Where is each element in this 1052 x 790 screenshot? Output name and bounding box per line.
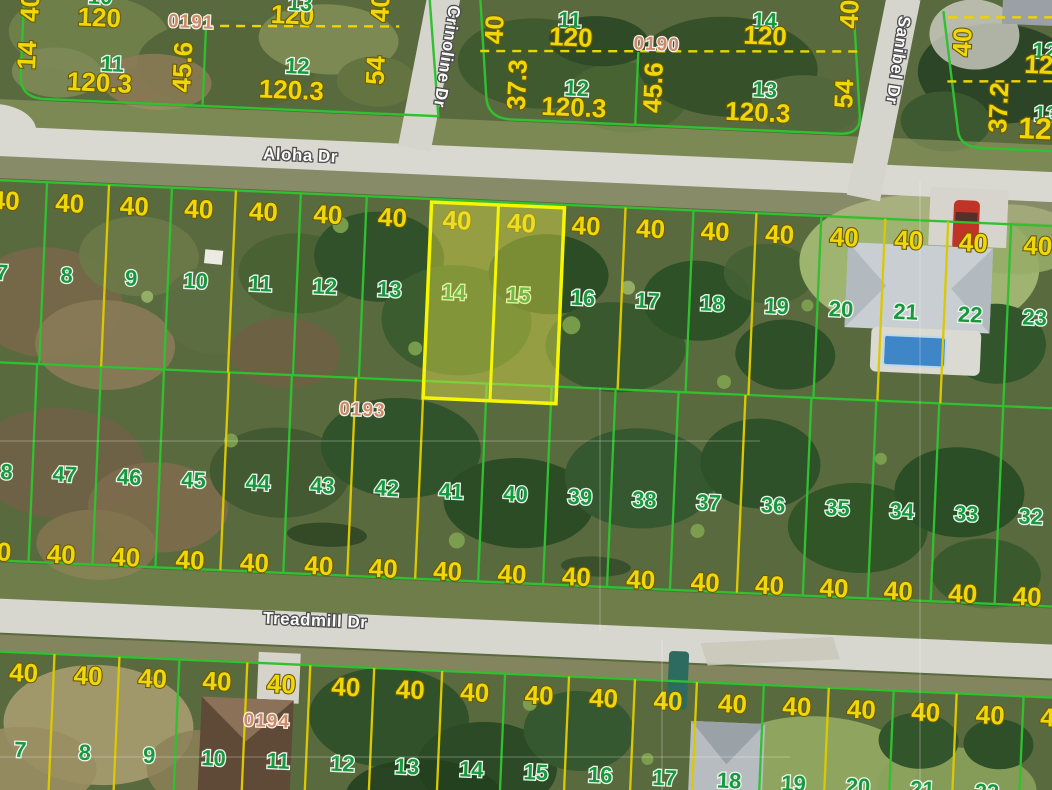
lot-width-label: 40 <box>460 677 490 708</box>
corner-building-roof <box>1002 0 1052 26</box>
lot-width-label: 40 <box>248 196 278 227</box>
dim-label: 40 <box>14 0 45 22</box>
lot-number-label[interactable]: 11 <box>248 271 272 297</box>
lot-number-label[interactable]: 11 <box>266 748 290 774</box>
lot-number-label[interactable]: 39 <box>567 484 593 510</box>
lot-width-label: 40 <box>1012 581 1042 612</box>
lot-number-label[interactable]: 44 <box>245 470 271 496</box>
dim-label: 40 <box>946 27 977 57</box>
swimming-pool <box>883 335 946 368</box>
lot-number-label[interactable]: 13 <box>377 276 403 302</box>
lot-number-label[interactable]: 33 <box>953 501 979 527</box>
lot-number-label[interactable]: 22 <box>974 779 1000 790</box>
lot-number-label[interactable]: 16 <box>587 762 613 788</box>
lot-number-label[interactable]: 8 <box>60 262 73 288</box>
lot-number-label[interactable]: 40 <box>503 481 529 507</box>
lot-number-label[interactable]: 17 <box>652 765 678 790</box>
dim-label: 120 <box>1018 112 1052 147</box>
lot-width-label: 40 <box>690 567 720 598</box>
dim-label: 40 <box>364 0 395 23</box>
dim-label: 54 <box>360 55 391 86</box>
lot-number-label[interactable]: 19 <box>764 293 790 319</box>
lot-width-label: 40 <box>175 544 205 575</box>
map-rotated-layer: 7891011121314151617181920212223404040404… <box>0 0 1052 790</box>
lot-width-label: 40 <box>883 575 913 606</box>
lot-number-label[interactable]: 21 <box>910 776 936 790</box>
lot-width-label: 40 <box>975 699 1005 730</box>
parcel-map[interactable]: 7891011121314151617181920212223404040404… <box>0 0 1052 790</box>
lot-width-label: 40 <box>561 561 591 592</box>
lot-width-label: 40 <box>202 665 232 696</box>
dim-label: 45.6 <box>166 41 198 93</box>
dim-label: 14 <box>11 40 42 71</box>
selected-parcel-highlight[interactable] <box>423 202 564 404</box>
lot-width-label: 40 <box>119 190 149 221</box>
lot-number-label[interactable]: 19 <box>781 770 807 790</box>
block-label-0190: 0190 <box>633 33 680 56</box>
dim-label: 120.3 <box>725 96 791 129</box>
lot-number-label[interactable]: 7 <box>14 737 27 763</box>
lot-number-label[interactable]: 18 <box>716 768 742 790</box>
lot-number-label[interactable]: 46 <box>116 464 142 490</box>
lot-width-label: 40 <box>626 564 656 595</box>
lot-number-label[interactable]: 20 <box>845 773 871 790</box>
lot-number-label[interactable]: 10 <box>183 268 209 294</box>
lot-number-label[interactable]: 37 <box>696 489 722 515</box>
lot-width-label: 40 <box>846 694 876 725</box>
lot-number-label[interactable]: 41 <box>438 478 464 504</box>
lot-width-label: 40 <box>46 539 76 570</box>
lot-number-label[interactable]: 34 <box>889 498 915 524</box>
dim-label: 120 <box>1024 49 1052 81</box>
lot-width-label: 40 <box>137 663 167 694</box>
dim-label: 45.6 <box>637 62 669 114</box>
lot-width-label: 40 <box>377 202 407 233</box>
lot-width-label: 40 <box>395 674 425 705</box>
lot-width-label: 40 <box>1023 230 1052 261</box>
dim-label: 54 <box>828 78 859 109</box>
lot-number-label[interactable]: 21 <box>893 299 919 325</box>
lot-number-label[interactable]: 43 <box>310 473 336 499</box>
lot-width-label: 40 <box>755 570 785 601</box>
lot-width-label: 40 <box>571 210 601 241</box>
lot-width-label: 40 <box>304 550 334 581</box>
lot-number-label[interactable]: 22 <box>957 302 983 328</box>
lot-width-label: 40 <box>184 193 214 224</box>
lot-width-label: 40 <box>653 685 683 716</box>
lot-number-label[interactable]: 36 <box>760 492 786 518</box>
lot-number-label[interactable]: 18 <box>699 290 725 316</box>
lot-number-label[interactable]: 9 <box>143 742 156 768</box>
lot-width-label: 40 <box>0 536 12 567</box>
lot-width-label: 40 <box>433 555 463 586</box>
lot-width-label: 40 <box>819 572 849 603</box>
lot-width-label: 40 <box>368 553 398 584</box>
dim-label: 120 <box>549 21 594 53</box>
block-label-0193: 0193 <box>339 399 386 422</box>
parcel-map-viewport: 7891011121314151617181920212223404040404… <box>0 0 1052 790</box>
lot-width-label: 40 <box>1040 702 1052 733</box>
lot-width-label: 40 <box>911 696 941 727</box>
lot-width-label: 40 <box>239 547 269 578</box>
lot-width-label: 40 <box>9 657 39 688</box>
lot-width-label: 40 <box>717 688 747 719</box>
lot-width-label: 40 <box>313 199 343 230</box>
lot-number-label[interactable]: 12 <box>312 273 338 299</box>
lot-width-label: 40 <box>782 691 812 722</box>
dim-label: 37.3 <box>501 59 533 111</box>
lot-number-label[interactable]: 35 <box>825 495 851 521</box>
lot-width-label: 40 <box>524 680 554 711</box>
lot-width-label: 40 <box>765 219 795 250</box>
lot-number-label[interactable]: 38 <box>632 487 658 513</box>
lot-width-label: 40 <box>331 671 361 702</box>
lot-number-label[interactable]: 15 <box>523 759 549 785</box>
lot-width-label: 40 <box>948 578 978 609</box>
lot-width-label: 40 <box>589 682 619 713</box>
dim-label: 40 <box>479 14 510 44</box>
lot-number-label[interactable]: 10 <box>87 0 113 9</box>
street-label-aloha: Aloha Dr <box>263 144 339 166</box>
lot-number-label[interactable]: 14 <box>459 756 485 782</box>
dim-label: 120 <box>743 19 788 51</box>
lot-width-label: 40 <box>700 216 730 247</box>
lot-number-label[interactable]: 13 <box>287 0 313 16</box>
dim-label: 120.3 <box>541 91 607 124</box>
lot-number-label[interactable]: 7 <box>0 260 9 286</box>
lot-number-label[interactable]: 9 <box>125 265 138 291</box>
dim-label: 120.3 <box>66 66 132 99</box>
dim-label: 40 <box>834 0 865 29</box>
lot-number-label[interactable]: 48 <box>0 458 13 484</box>
lot-width-label: 40 <box>829 221 859 252</box>
lot-width-label: 40 <box>73 660 103 691</box>
lot-width-label: 40 <box>958 227 988 258</box>
block-label-0191: 0191 <box>168 11 215 34</box>
lot-number-label[interactable]: 16 <box>570 285 596 311</box>
lot-width-label: 40 <box>497 558 527 589</box>
lot-width-label: 40 <box>894 224 924 255</box>
lot-number-label[interactable]: 23 <box>1022 304 1048 330</box>
dim-label: 37.2 <box>982 82 1014 134</box>
lot-number-label[interactable]: 12 <box>330 751 356 777</box>
lot-width-label: 40 <box>636 213 666 244</box>
lot-width-label: 40 <box>266 668 296 699</box>
lot-number-label[interactable]: 8 <box>78 740 91 766</box>
lot-number-label[interactable]: 45 <box>181 467 207 493</box>
lot-width-label: 40 <box>55 188 85 219</box>
lot-width-label: 40 <box>111 541 141 572</box>
lot-number-label[interactable]: 32 <box>1018 503 1044 529</box>
lot-number-label[interactable]: 17 <box>635 288 661 314</box>
lot-number-label[interactable]: 47 <box>52 461 78 487</box>
lot-width-label: 40 <box>0 185 20 216</box>
lot-number-label[interactable]: 42 <box>374 475 400 501</box>
shed <box>204 249 223 265</box>
lot-number-label[interactable]: 20 <box>828 296 854 322</box>
block-label-0194: 0194 <box>243 710 290 733</box>
dim-label: 120.3 <box>258 73 324 106</box>
lot-number-label[interactable]: 10 <box>201 745 227 771</box>
